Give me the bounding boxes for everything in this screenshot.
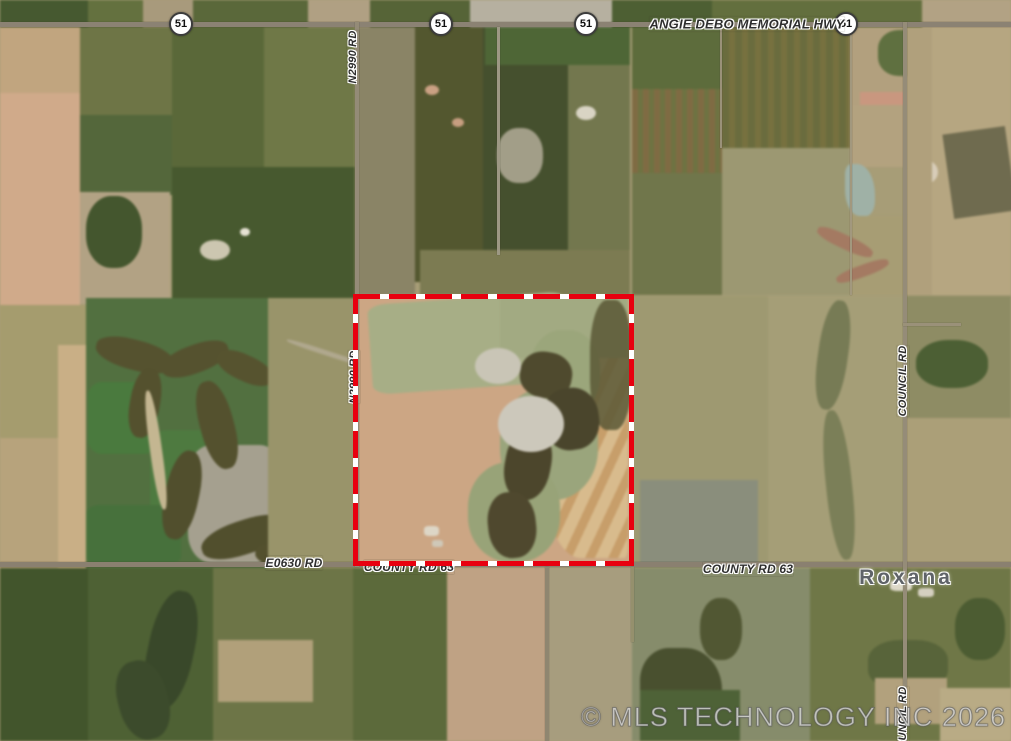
highway-51-shield: 51	[574, 12, 598, 36]
satellite-map-image[interactable]: 51515151ANGIE DEBO MEMORIAL HWYN2990 RDN…	[0, 0, 1011, 741]
property-boundary-outline	[353, 294, 634, 566]
boundary-edge-top	[353, 294, 634, 299]
highway-51-shield: 51	[169, 12, 193, 36]
boundary-edge-right	[629, 294, 634, 566]
boundary-edge-bottom	[353, 561, 634, 566]
highway-51-shield: 51	[429, 12, 453, 36]
road-label: ANGIE DEBO MEMORIAL HWY	[649, 17, 844, 32]
road-label: E0630 RD	[266, 556, 323, 570]
road-label: N2990 RD	[347, 31, 359, 84]
road-label: COUNTY RD 63	[703, 562, 793, 576]
boundary-edge-left	[353, 294, 358, 566]
copyright-watermark: © MLS TECHNOLOGY INC 2026	[581, 702, 1006, 733]
road-label: COUNCIL RD	[897, 346, 909, 417]
place-label: Roxana	[859, 566, 953, 590]
